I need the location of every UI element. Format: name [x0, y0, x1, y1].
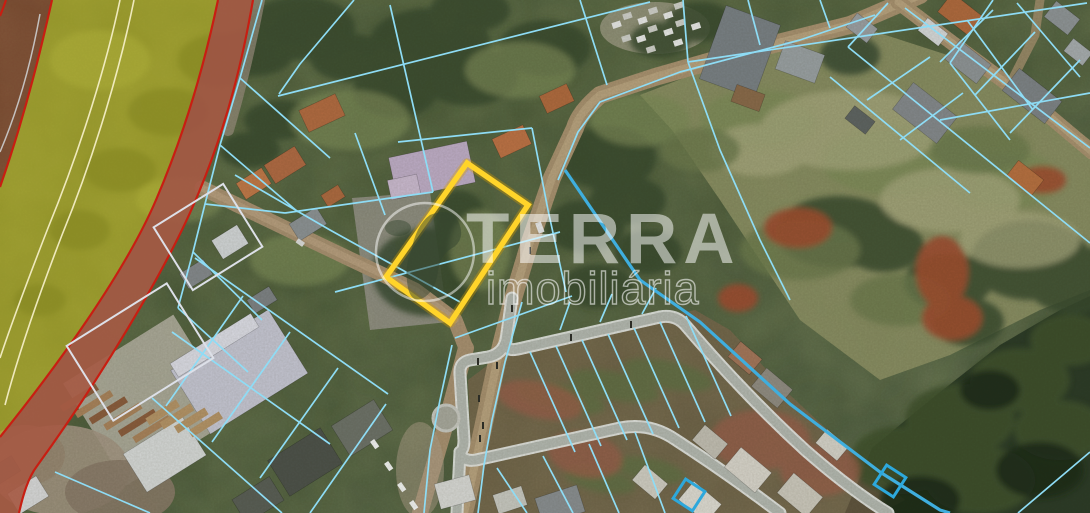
satellite-map-image: TERRA imobiliária [0, 0, 1090, 513]
aerial-photo: TERRA imobiliária [0, 0, 1090, 513]
watermark-subtitle-text: imobiliária [486, 263, 700, 314]
